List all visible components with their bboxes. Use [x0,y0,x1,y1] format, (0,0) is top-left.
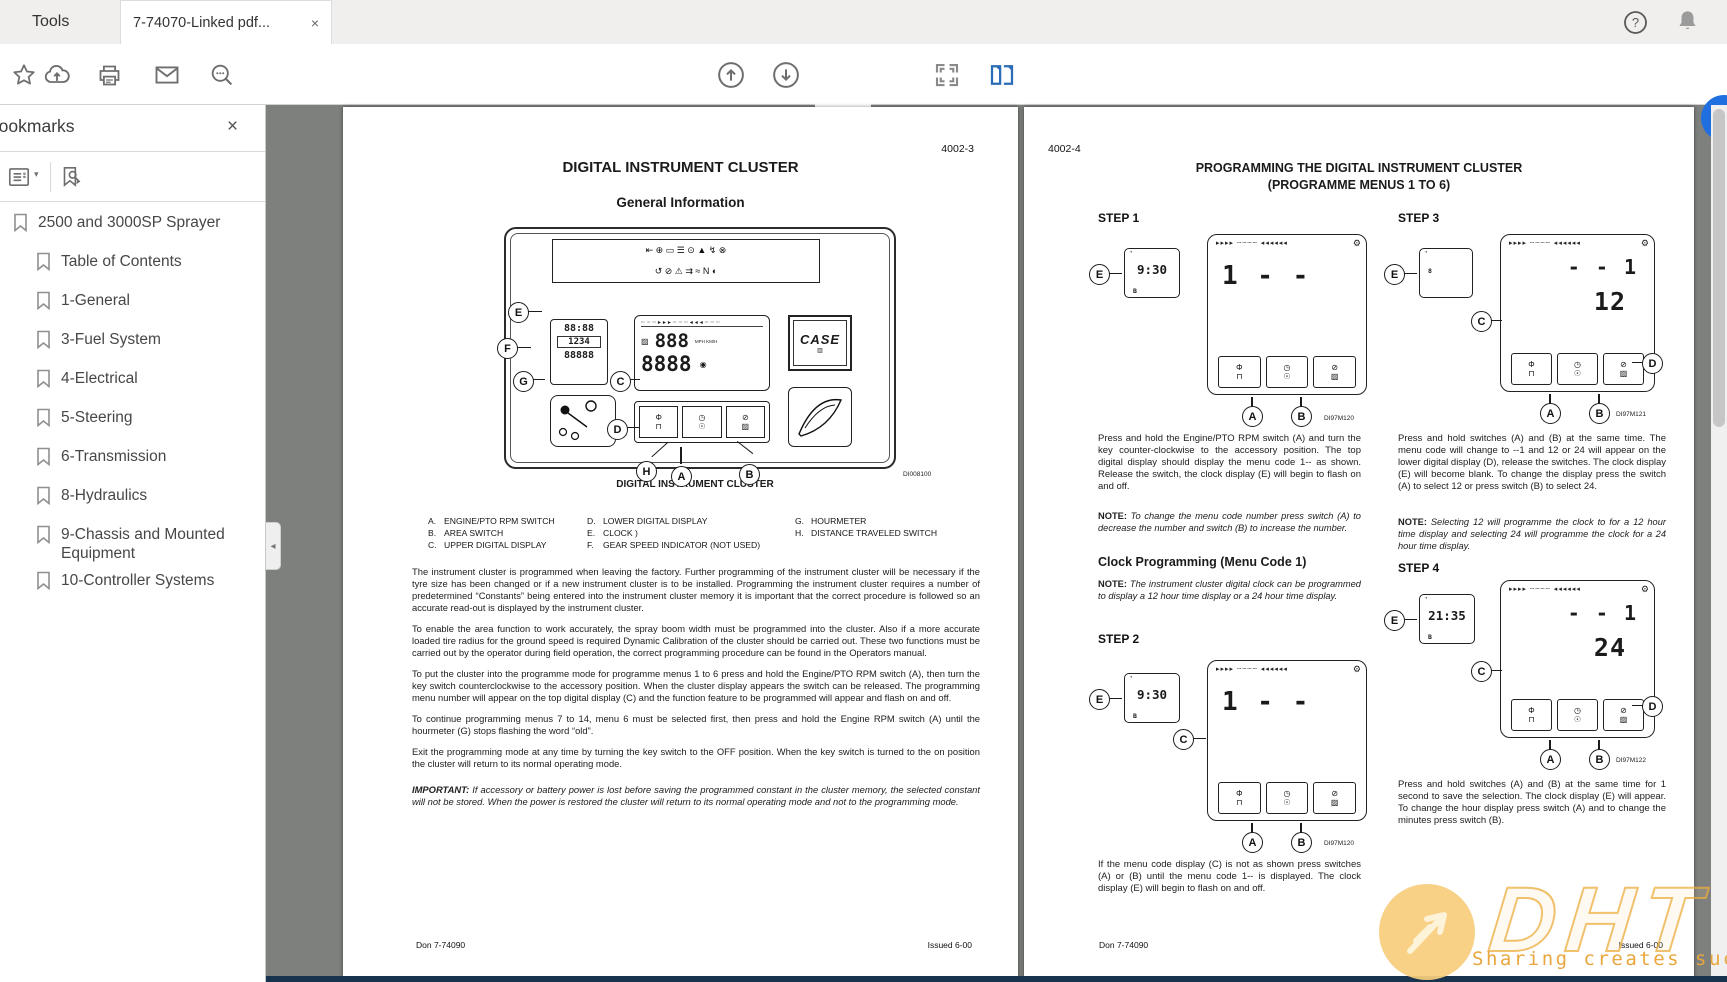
page-title-line2: (PROGRAMME MENUS 1 TO 6) [1024,178,1694,192]
callout-c: C [1471,661,1492,682]
callout-e: E [1089,264,1110,285]
callout-b: B [1589,403,1610,424]
speed-units-label: MPH KM/H [695,339,719,344]
odometer-digits: 88888 [551,350,607,361]
step2-clock-digits: 9:30 [1125,687,1179,702]
bookmark-label: 4-Electrical [61,361,138,388]
clock-face-icon: ◷ [699,413,706,422]
bookmark-item[interactable]: 5-Steering [0,400,265,439]
area-counter-digits: 1234 [557,336,601,348]
leader-line [1109,273,1122,274]
tab-tools-label: Tools [32,13,69,31]
display-strip: ▸▸▸▸ ┄┄┄┄ ◂◂◂◂◂◂ [1216,239,1358,247]
next-page-button[interactable] [771,60,801,90]
important-label: IMPORTANT: [412,784,469,795]
tab-close-icon[interactable]: × [311,16,319,30]
step4-body: Press and hold switches (A) and (B) at t… [1398,779,1666,827]
step3-label: STEP 3 [1398,211,1439,225]
callout-b: B [739,464,760,485]
sidebar-collapse-handle[interactable]: ◂ [266,522,281,570]
upper-display-row: ▨ 888 MPH KM/H [635,330,769,352]
step4-display-digits2: 24 [1594,633,1626,662]
bookmarks-title: Bookmarks [0,116,75,137]
area-button: ⊘▨ [1313,356,1356,388]
phi-icon: Φ [655,413,661,422]
brand-logo-inner: CASE ▥ [793,320,847,366]
leader-line [627,427,639,428]
bookmark-item[interactable]: 4-Electrical [0,361,265,400]
gear-icon: ⚙ [1641,584,1649,595]
bookmark-item[interactable]: 1-General [0,283,265,322]
step3-clock-digits: 8 [1428,267,1432,275]
paragraph: Exit the programming mode at any time by… [412,746,980,770]
droplet-icon: ◉ [700,360,707,369]
callout-e: E [1384,264,1405,285]
hatch-small-icon: ▨ [742,422,750,431]
clock-programming-heading: Clock Programming (Menu Code 1) [1098,555,1306,569]
bookmarks-header: Bookmarks × [0,105,265,152]
step2-clock-display: ◔ 9:30 B [1124,673,1180,723]
step4-display: ▸▸▸▸ ┄┄┄┄ ◂◂◂◂◂◂ ⚙ - - 1 24 Φ⊓ ◷☉ ⊘▨ [1500,580,1655,738]
bookmarks-list: 2500 and 3000SP Sprayer Table of Content… [0,205,265,602]
important-note: IMPORTANT: If accessory or battery power… [412,784,980,808]
bookmark-label: 1-General [61,283,130,310]
page-subtitle: General Information [343,195,1018,210]
key-switch-box [550,395,616,447]
bookmark-item[interactable]: 3-Fuel System [0,322,265,361]
bookmark-item[interactable]: Table of Contents [0,244,265,283]
engine-pto-rpm-button: ◷☉ [682,406,721,438]
step1-clock-digits: 9:30 [1125,262,1179,277]
toolbar: / 330 [0,44,1727,105]
gear-icon: ⚙ [1641,238,1649,249]
sun-icon: ☉ [698,422,705,431]
tab-bar: Tools 7-74070-Linked pdf... × ? [0,0,1727,45]
email-icon[interactable] [152,60,182,90]
ih-emblem-icon: ▥ [817,347,823,354]
area-button: ⊘▨ [726,406,765,438]
callout-e: E [1089,689,1110,710]
upper-display-digits: 888 [655,330,689,352]
bookmark-item[interactable]: 10-Controller Systems [0,563,265,602]
clock-mark-icon: ◔ [1129,675,1133,681]
leader-line [517,347,531,348]
step2-display-digits: 1 - - [1222,687,1310,717]
zoom-tool-icon[interactable] [207,60,237,90]
facing-pages-view-icon[interactable] [987,60,1017,90]
display-strip: ▸▸▸▸ ┄┄┄┄ ◂◂◂◂◂◂ [1509,239,1646,247]
page-code: 4002-4 [1048,143,1081,155]
area-button: ⊘▨ [1313,782,1356,814]
hatch-icon: ▨ [641,337,649,346]
bookmarks-panel: Bookmarks × ▾ 2500 and 3000SP Sprayer Ta… [0,105,266,982]
callout-a: A [1242,832,1263,853]
callout-b: B [1589,749,1610,770]
callout-b: B [1291,406,1312,427]
figure-reference-label: DI97M121 [1616,411,1646,418]
leader-line [1404,273,1417,274]
callout-e: E [508,302,529,323]
paragraph: To put the cluster into the programme mo… [412,668,980,704]
step4-clock-display: ◔ 21:35 B [1419,594,1475,644]
step3-display-digits: - - 1 [1568,255,1638,279]
area-button: ⊘▨ [1603,353,1644,385]
favorite-star-icon[interactable] [9,60,39,90]
bookmark-options-icon[interactable] [4,162,34,192]
important-text: If accessory or battery power is lost be… [412,784,980,807]
display-buttons: Φ⊓ ◷☉ ⊘▨ [1218,356,1356,388]
leader-line [533,379,545,380]
display-buttons: Φ⊓ ◷☉ ⊘▨ [1511,699,1644,731]
step3-clock-display: ◔ 8 [1419,248,1473,298]
figure-reference-label: DI97M122 [1616,757,1646,764]
step1-label: STEP 1 [1098,211,1139,225]
cluster-button-row: Φ⊓ ◷☉ ⊘▨ [634,401,770,443]
callout-d: D [1642,696,1663,717]
svg-text:?: ? [1632,15,1639,30]
lower-display-row: 8888 ◉ [635,352,769,376]
gear-icon: ⚙ [1353,238,1361,249]
step3-display-digits2: 12 [1594,287,1626,316]
cluster-legend: A.ENGINE/PTO RPM SWITCH B.AREA SWITCH C.… [343,515,1018,555]
callout-e: E [1384,610,1405,631]
bookmark-label: 8-Hydraulics [61,478,147,505]
lamp-row-2: ↺ ⊘ ⚠ ⇉ ≈ N ◐ [553,261,819,282]
brand-logo-box: CASE ▥ [788,315,852,371]
step1-clock-sub: B [1133,287,1137,295]
step2-label: STEP 2 [1098,632,1139,646]
tab-document[interactable]: 7-74070-Linked pdf... × [120,0,332,44]
callout-c: C [1471,311,1492,332]
warning-lamp-strip: ⇤ ⊕ ▭ ☰ ⊙ ▲ ↯ ⊗ ↺ ⊘ ⚠ ⇉ ≈ N ◐ [552,239,820,283]
page-title-line1: PROGRAMMING THE DIGITAL INSTRUMENT CLUST… [1024,161,1694,175]
help-icon[interactable]: ? [1623,10,1648,35]
bookmarks-toolbar: ▾ [0,152,265,202]
watermark-arrow-icon [1392,897,1462,967]
step4-label: STEP 4 [1398,561,1439,575]
step3-note: NOTE: Selecting 12 will programme the cl… [1398,517,1666,553]
bookmark-item[interactable]: 8-Hydraulics [0,478,265,517]
bookmark-item[interactable]: 9-Chassis and Mounted Equipment [0,517,265,563]
diagram-caption: DIGITAL INSTRUMENT CLUSTER [495,479,895,490]
footer-issue-date: Issued 6-00 [928,940,972,950]
display-buttons: Φ⊓ ◷☉ ⊘▨ [1511,353,1644,385]
display-strip: ▸▸▸▸ ┄┄┄┄ ◂◂◂◂◂◂ [1216,665,1358,673]
callout-a: A [1540,749,1561,770]
callout-a: A [671,466,692,487]
note-label: NOTE: [1098,579,1127,589]
cloud-upload-icon[interactable] [42,60,72,90]
slash-circle-icon: ⊘ [742,413,749,422]
figure-reference-label: DI97M120 [1324,840,1354,847]
bookmark-label: 10-Controller Systems [61,563,214,590]
area-button: ⊘▨ [1603,699,1644,731]
clock-mark-icon: ◔ [1129,250,1133,256]
engine-pto-rpm-button: ◷☉ [1557,699,1598,731]
callout-c: C [610,371,631,392]
tab-tools[interactable]: Tools [18,0,83,44]
leader-line [1491,670,1502,671]
display-buttons: Φ⊓ ◷☉ ⊘▨ [1218,782,1356,814]
clock-mark-icon: ◔ [1424,250,1428,256]
pdf-page-right: 4002-4 PROGRAMMING THE DIGITAL INSTRUMEN… [1024,107,1694,982]
callout-a: A [1242,406,1263,427]
clock-display-box: 88:88 1234 88888 [550,319,608,385]
collapse-left-icon: ◂ [270,541,275,552]
page-title: DIGITAL INSTRUMENT CLUSTER [343,159,1018,176]
step2-body: If the menu code display (C) is not as s… [1098,859,1361,895]
instrument-cluster-diagram: ⇤ ⊕ ▭ ☰ ⊙ ▲ ↯ ⊗ ↺ ⊘ ⚠ ⇉ ≈ N ◐ 88:88 1234… [504,227,896,469]
paragraph: The instrument cluster is programmed whe… [412,566,980,613]
previous-page-button[interactable] [716,60,746,90]
bottom-edge-bar [266,976,1727,982]
vertical-scrollbar[interactable] [1711,105,1727,982]
engine-pto-rpm-button: ◷☉ [1266,782,1309,814]
callout-b: B [1291,832,1312,853]
step4-clock-sub: B [1428,633,1432,641]
gear-icon: ⚙ [1353,664,1361,675]
distance-traveled-button: Φ⊓ [1511,353,1552,385]
bookmark-item[interactable]: 2500 and 3000SP Sprayer [0,205,265,244]
figure-reference-label: DI008100 [903,471,931,478]
note-label: NOTE: [1098,511,1127,521]
paragraph: To continue programming menus 7 to 14, m… [412,713,980,737]
leader-line [1193,738,1206,739]
lower-display-digits: 8888 [641,352,692,376]
callout-d: D [1642,353,1663,374]
bookmark-label: 2500 and 3000SP Sprayer [38,205,220,232]
engine-pto-rpm-button: ◷☉ [1266,356,1309,388]
main-display-box: ┄┄┄▸▸▸┄┄┄◂◂◂┄┄┄ ▨ 888 MPH KM/H 8888 ◉ [634,315,770,391]
step1-body: Press and hold the Engine/PTO RPM switch… [1098,433,1361,493]
print-icon[interactable] [94,60,124,90]
callout-d: D [607,419,628,440]
distance-traveled-button: Φ⊓ [1511,699,1552,731]
distance-traveled-button: Φ⊓ [1218,356,1261,388]
figure-reference-label: DI97M120 [1324,415,1354,422]
callout-h: H [636,461,657,482]
step2-display: ▸▸▸▸ ┄┄┄┄ ◂◂◂◂◂◂ ⚙ 1 - - Φ⊓ ◷☉ ⊘▨ [1207,660,1367,821]
display-strip: ▸▸▸▸ ┄┄┄┄ ◂◂◂◂◂◂ [1509,585,1646,593]
bookmark-label: 5-Steering [61,400,133,427]
bookmark-label: Table of Contents [61,244,182,271]
callout-c: C [1173,729,1194,750]
callout-a: A [1540,403,1561,424]
bookmarks-close-icon[interactable]: × [227,116,238,138]
distance-traveled-button: Φ⊓ [639,406,678,438]
leader-line [528,311,542,312]
leader-line [1109,698,1122,699]
page-code: 4002-3 [941,143,974,155]
leader-line [680,447,682,464]
tab-document-label: 7-74070-Linked pdf... [133,15,311,31]
footer-document-number: Don 7-74090 [416,940,465,950]
step4-clock-digits: 21:35 [1420,608,1474,623]
bookmark-label: 9-Chassis and Mounted Equipment [61,517,249,563]
watermark-tagline: Sharing creates success [1472,948,1727,970]
pdf-page-left: 4002-3 DIGITAL INSTRUMENT CLUSTER Genera… [343,107,1018,982]
step1-note: NOTE: To change the menu code number pre… [1098,511,1361,535]
bookmark-search-icon[interactable] [56,162,86,192]
callout-f: F [497,338,518,359]
step2-clock-sub: B [1133,712,1137,720]
clock-digits: 88:88 [551,323,607,334]
step1-display-digits: 1 - - [1222,261,1310,291]
step4-display-digits: - - 1 [1568,601,1638,625]
page-body-text: The instrument cluster is programmed whe… [412,566,980,817]
caret-down-icon[interactable]: ▾ [34,169,39,180]
scrollbar-thumb[interactable] [1713,109,1725,427]
clock-programming-note: NOTE: The instrument cluster digital clo… [1098,579,1361,603]
notification-bell-icon[interactable] [1674,8,1701,35]
watermark-circle [1379,884,1475,980]
note-label: NOTE: [1398,517,1427,527]
brand-logo-text: CASE [800,332,840,347]
leader-line [630,379,640,380]
engine-pto-rpm-button: ◷☉ [1557,353,1598,385]
hourmeter-box [788,387,852,447]
distance-traveled-button: Φ⊓ [1218,782,1261,814]
step1-display: ▸▸▸▸ ┄┄┄┄ ◂◂◂◂◂◂ ⚙ 1 - - Φ⊓ ◷☉ ⊘▨ [1207,234,1367,395]
bookmark-item[interactable]: 6-Transmission [0,439,265,478]
footer-document-number: Don 7-74090 [1099,940,1148,950]
step3-body: Press and hold switches (A) and (B) at t… [1398,433,1666,493]
bookmark-label: 3-Fuel System [61,322,161,349]
callout-g: G [513,371,534,392]
clock-mark-icon: ◔ [1424,596,1428,602]
lamp-row-1: ⇤ ⊕ ▭ ☰ ⊙ ▲ ↯ ⊗ [553,240,819,261]
paragraph: To enable the area function to work accu… [412,623,980,659]
step3-display: ▸▸▸▸ ┄┄┄┄ ◂◂◂◂◂◂ ⚙ - - 1 12 Φ⊓ ◷☉ ⊘▨ [1500,234,1655,392]
bar-icon: ⊓ [656,422,662,431]
bookmark-label: 6-Transmission [61,439,166,466]
display-strip: ┄┄┄▸▸▸┄┄┄◂◂◂┄┄┄ [641,319,763,327]
divider [50,162,51,192]
step1-clock-display: ◔ 9:30 B [1124,248,1180,298]
leader-line [1404,619,1417,620]
leader-line [1491,320,1502,321]
thumbnail-view-icon[interactable] [932,60,962,90]
